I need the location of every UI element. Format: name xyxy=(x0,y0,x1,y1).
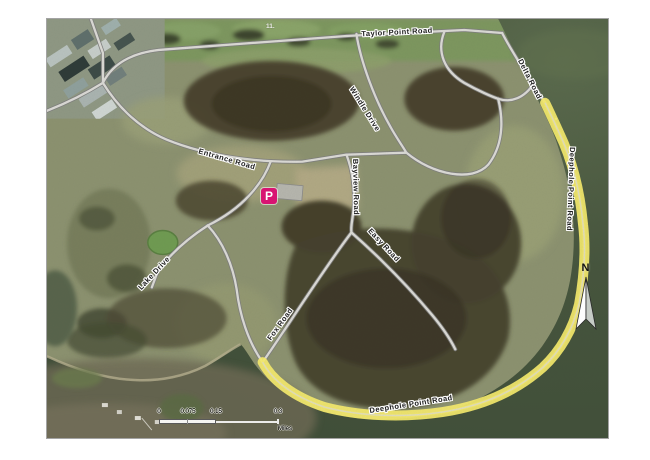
scale-bar: 0 0.075 0.15 0.3 Miles xyxy=(151,409,311,437)
scale-unit-label: Miles xyxy=(278,426,292,432)
parking-icon: P xyxy=(261,188,277,204)
scale-bar-endtick xyxy=(277,419,279,424)
north-arrow-icon xyxy=(573,275,599,333)
scale-tick-0075: 0.075 xyxy=(180,409,195,415)
trail-map-image: Taylor Point Road Delta Road Deephole Po… xyxy=(46,18,609,439)
page: Taylor Point Road Delta Road Deephole Po… xyxy=(0,0,650,460)
north-arrow: N xyxy=(567,262,605,333)
scale-tick-03: 0.3 xyxy=(274,409,282,415)
basemap-route-marker: 11. xyxy=(266,23,275,30)
scale-tick-015: 0.15 xyxy=(210,409,222,415)
north-label: N xyxy=(567,262,605,274)
image-grain xyxy=(47,19,608,438)
scale-bar-divider xyxy=(187,419,188,424)
scale-tick-0: 0 xyxy=(157,409,160,415)
road-label-bayview-road: Bayview Road xyxy=(351,159,361,215)
aerial-basemap xyxy=(47,19,608,438)
scale-bar-line xyxy=(216,421,278,423)
